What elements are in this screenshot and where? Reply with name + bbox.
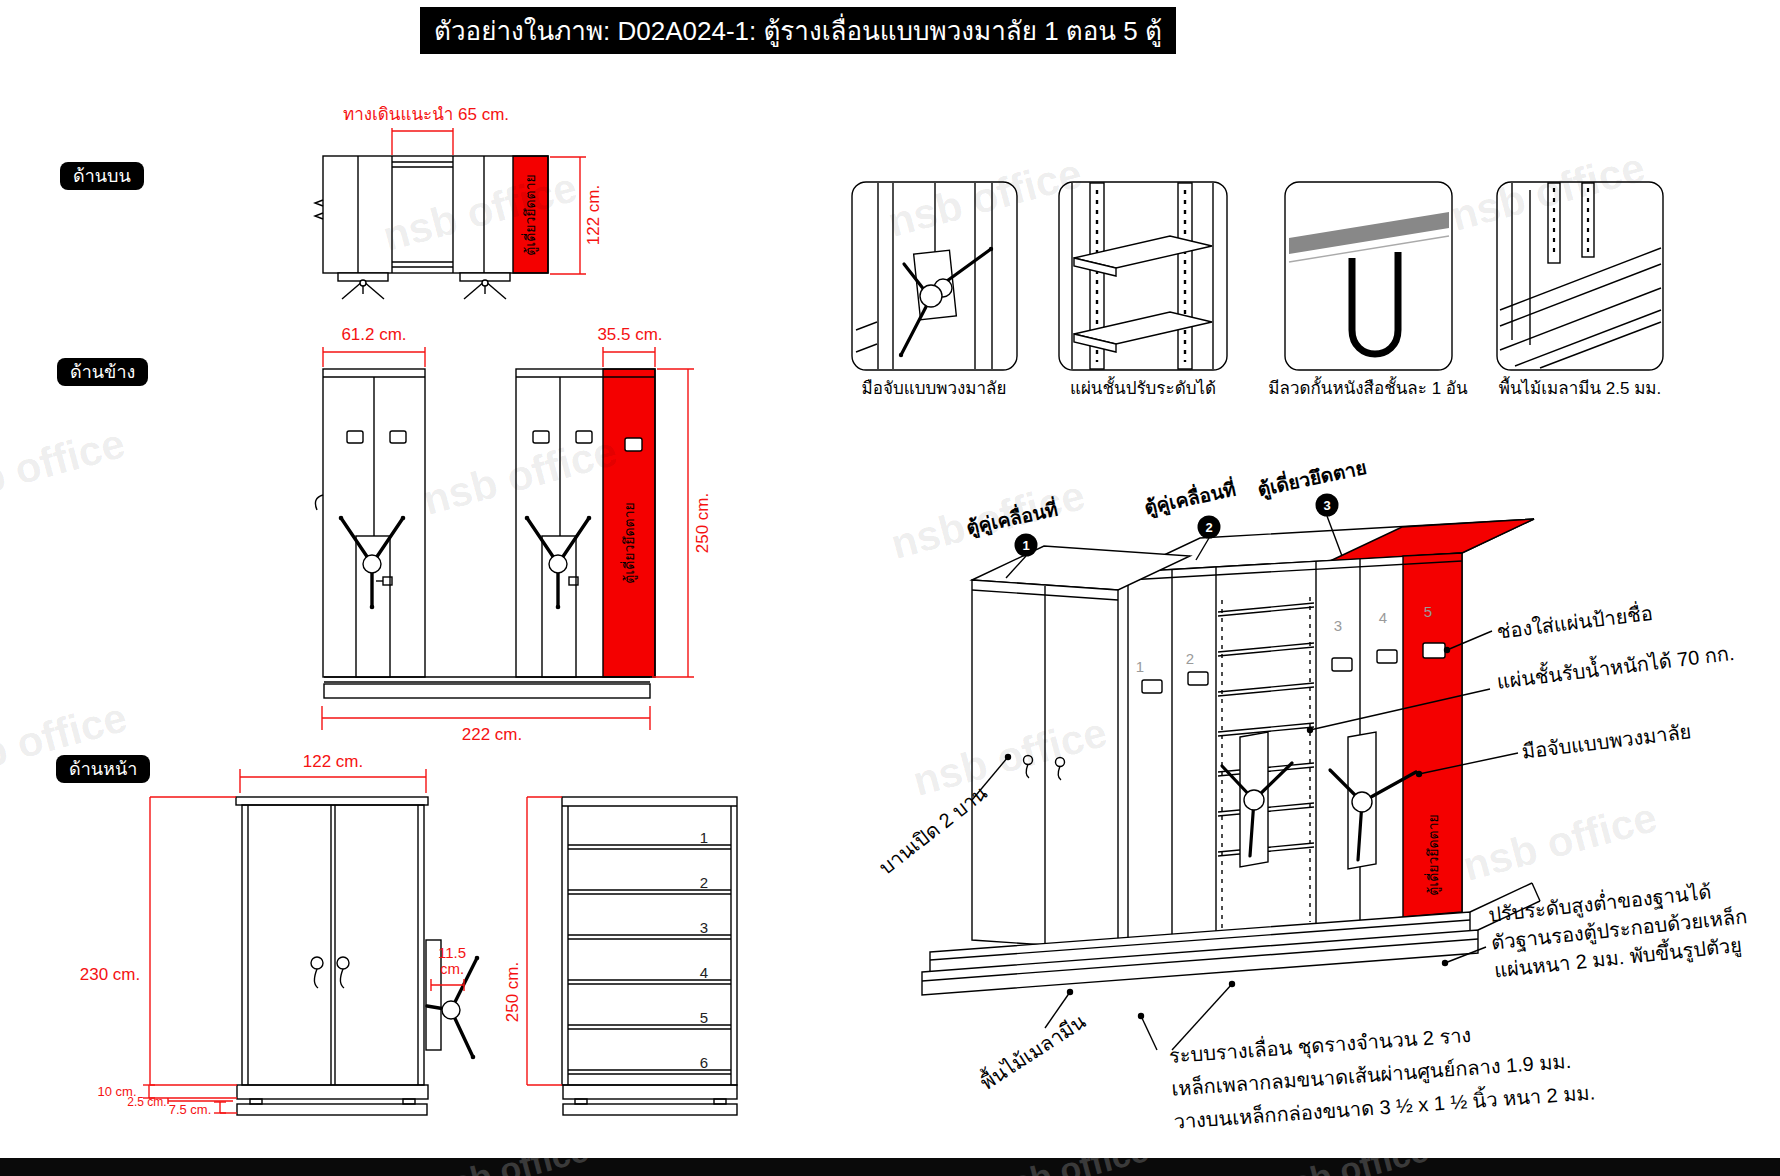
view-label-top: ด้านบน [60, 162, 144, 190]
dim-walkway-65: ทางเดินแนะนำ 65 cm. [343, 100, 509, 127]
detail-sketch-wire-stopper [1285, 182, 1452, 370]
dim-front-122: 122 cm. [303, 752, 363, 772]
view-label-front: ด้านหน้า [56, 755, 150, 783]
dim-front-2-5: 2.5 cm. [127, 1095, 166, 1109]
shelf-number-6: 6 [700, 1054, 708, 1071]
dim-side-222: 222 cm. [462, 725, 522, 745]
watermark: nsb office [1268, 1158, 1433, 1176]
side-fixed-cabinet-label: ตู้เดี่ยวยึดตาย [618, 502, 640, 583]
iso-unit-badge-3: 3 [1316, 494, 1339, 517]
dim-front-250: 250 cm. [503, 962, 523, 1022]
detail-caption-floor: พื้นไม้เมลามีน 2.5 มม. [1499, 374, 1662, 401]
isometric-drawing [922, 516, 1540, 1050]
dim-side-61-2: 61.2 cm. [341, 325, 406, 345]
detail-caption-handle: มือจับแบบพวงมาลัย [862, 374, 1007, 401]
shelf-number-2: 2 [700, 874, 708, 891]
bottom-bar: nsb office nsb office nsb office [0, 1158, 1780, 1176]
dim-front-230: 230 cm. [80, 965, 140, 985]
shelf-number-1: 1 [700, 829, 708, 846]
iso-unit-badge-2: 2 [1198, 516, 1221, 539]
keyhole-left [311, 957, 323, 988]
dim-front-11-5-unit: cm. [440, 960, 464, 977]
iso-cabinet-number-1: 1 [1136, 658, 1144, 675]
view-label-side: ด้านข้าง [57, 358, 148, 386]
detail-caption-shelf: แผ่นชั้นปรับระดับได้ [1070, 374, 1216, 401]
dim-front-7-5: 7.5 cm. [169, 1102, 212, 1117]
dim-top-122: 122 cm. [584, 185, 604, 245]
shelf-number-3: 3 [700, 919, 708, 936]
iso-unit-badge-1: 1 [1015, 534, 1038, 557]
watermark: nsb office [428, 1158, 593, 1176]
caster-right [460, 273, 510, 299]
front-view-dimension-lines [143, 769, 562, 1113]
detail-sketch-shelf [1059, 182, 1227, 370]
shelf-number-5: 5 [700, 1009, 708, 1026]
iso-cabinet-number-4: 4 [1379, 609, 1387, 626]
page-title: ตัวอย่างในภาพ: D02A024-1: ตู้รางเลื่อนแบ… [420, 7, 1176, 54]
watermark: nsb office [988, 1158, 1153, 1176]
dim-side-250: 250 cm. [693, 493, 713, 553]
dim-side-35-5: 35.5 cm. [597, 325, 662, 345]
iso-cabinet-number-3: 3 [1334, 617, 1342, 634]
iso-cabinet-number-5: 5 [1424, 603, 1432, 620]
caster-left [338, 273, 388, 299]
shelf-number-4: 4 [700, 964, 708, 981]
iso-fixed-cabinet-label: ตู้เดี่ยวยึดตาย [1422, 814, 1444, 895]
detail-caption-wire-stopper: มีลวดกั้นหนังสือชั้นละ 1 อัน [1268, 374, 1467, 401]
front-view-drawing [143, 769, 737, 1115]
dim-front-11-5-value: 11.5 [438, 944, 466, 961]
keyhole-right [337, 957, 349, 988]
product-diagram-page: ตัวอย่างในภาพ: D02A024-1: ตู้รางเลื่อนแบ… [0, 0, 1780, 1176]
iso-cabinet-number-2: 2 [1186, 650, 1194, 667]
